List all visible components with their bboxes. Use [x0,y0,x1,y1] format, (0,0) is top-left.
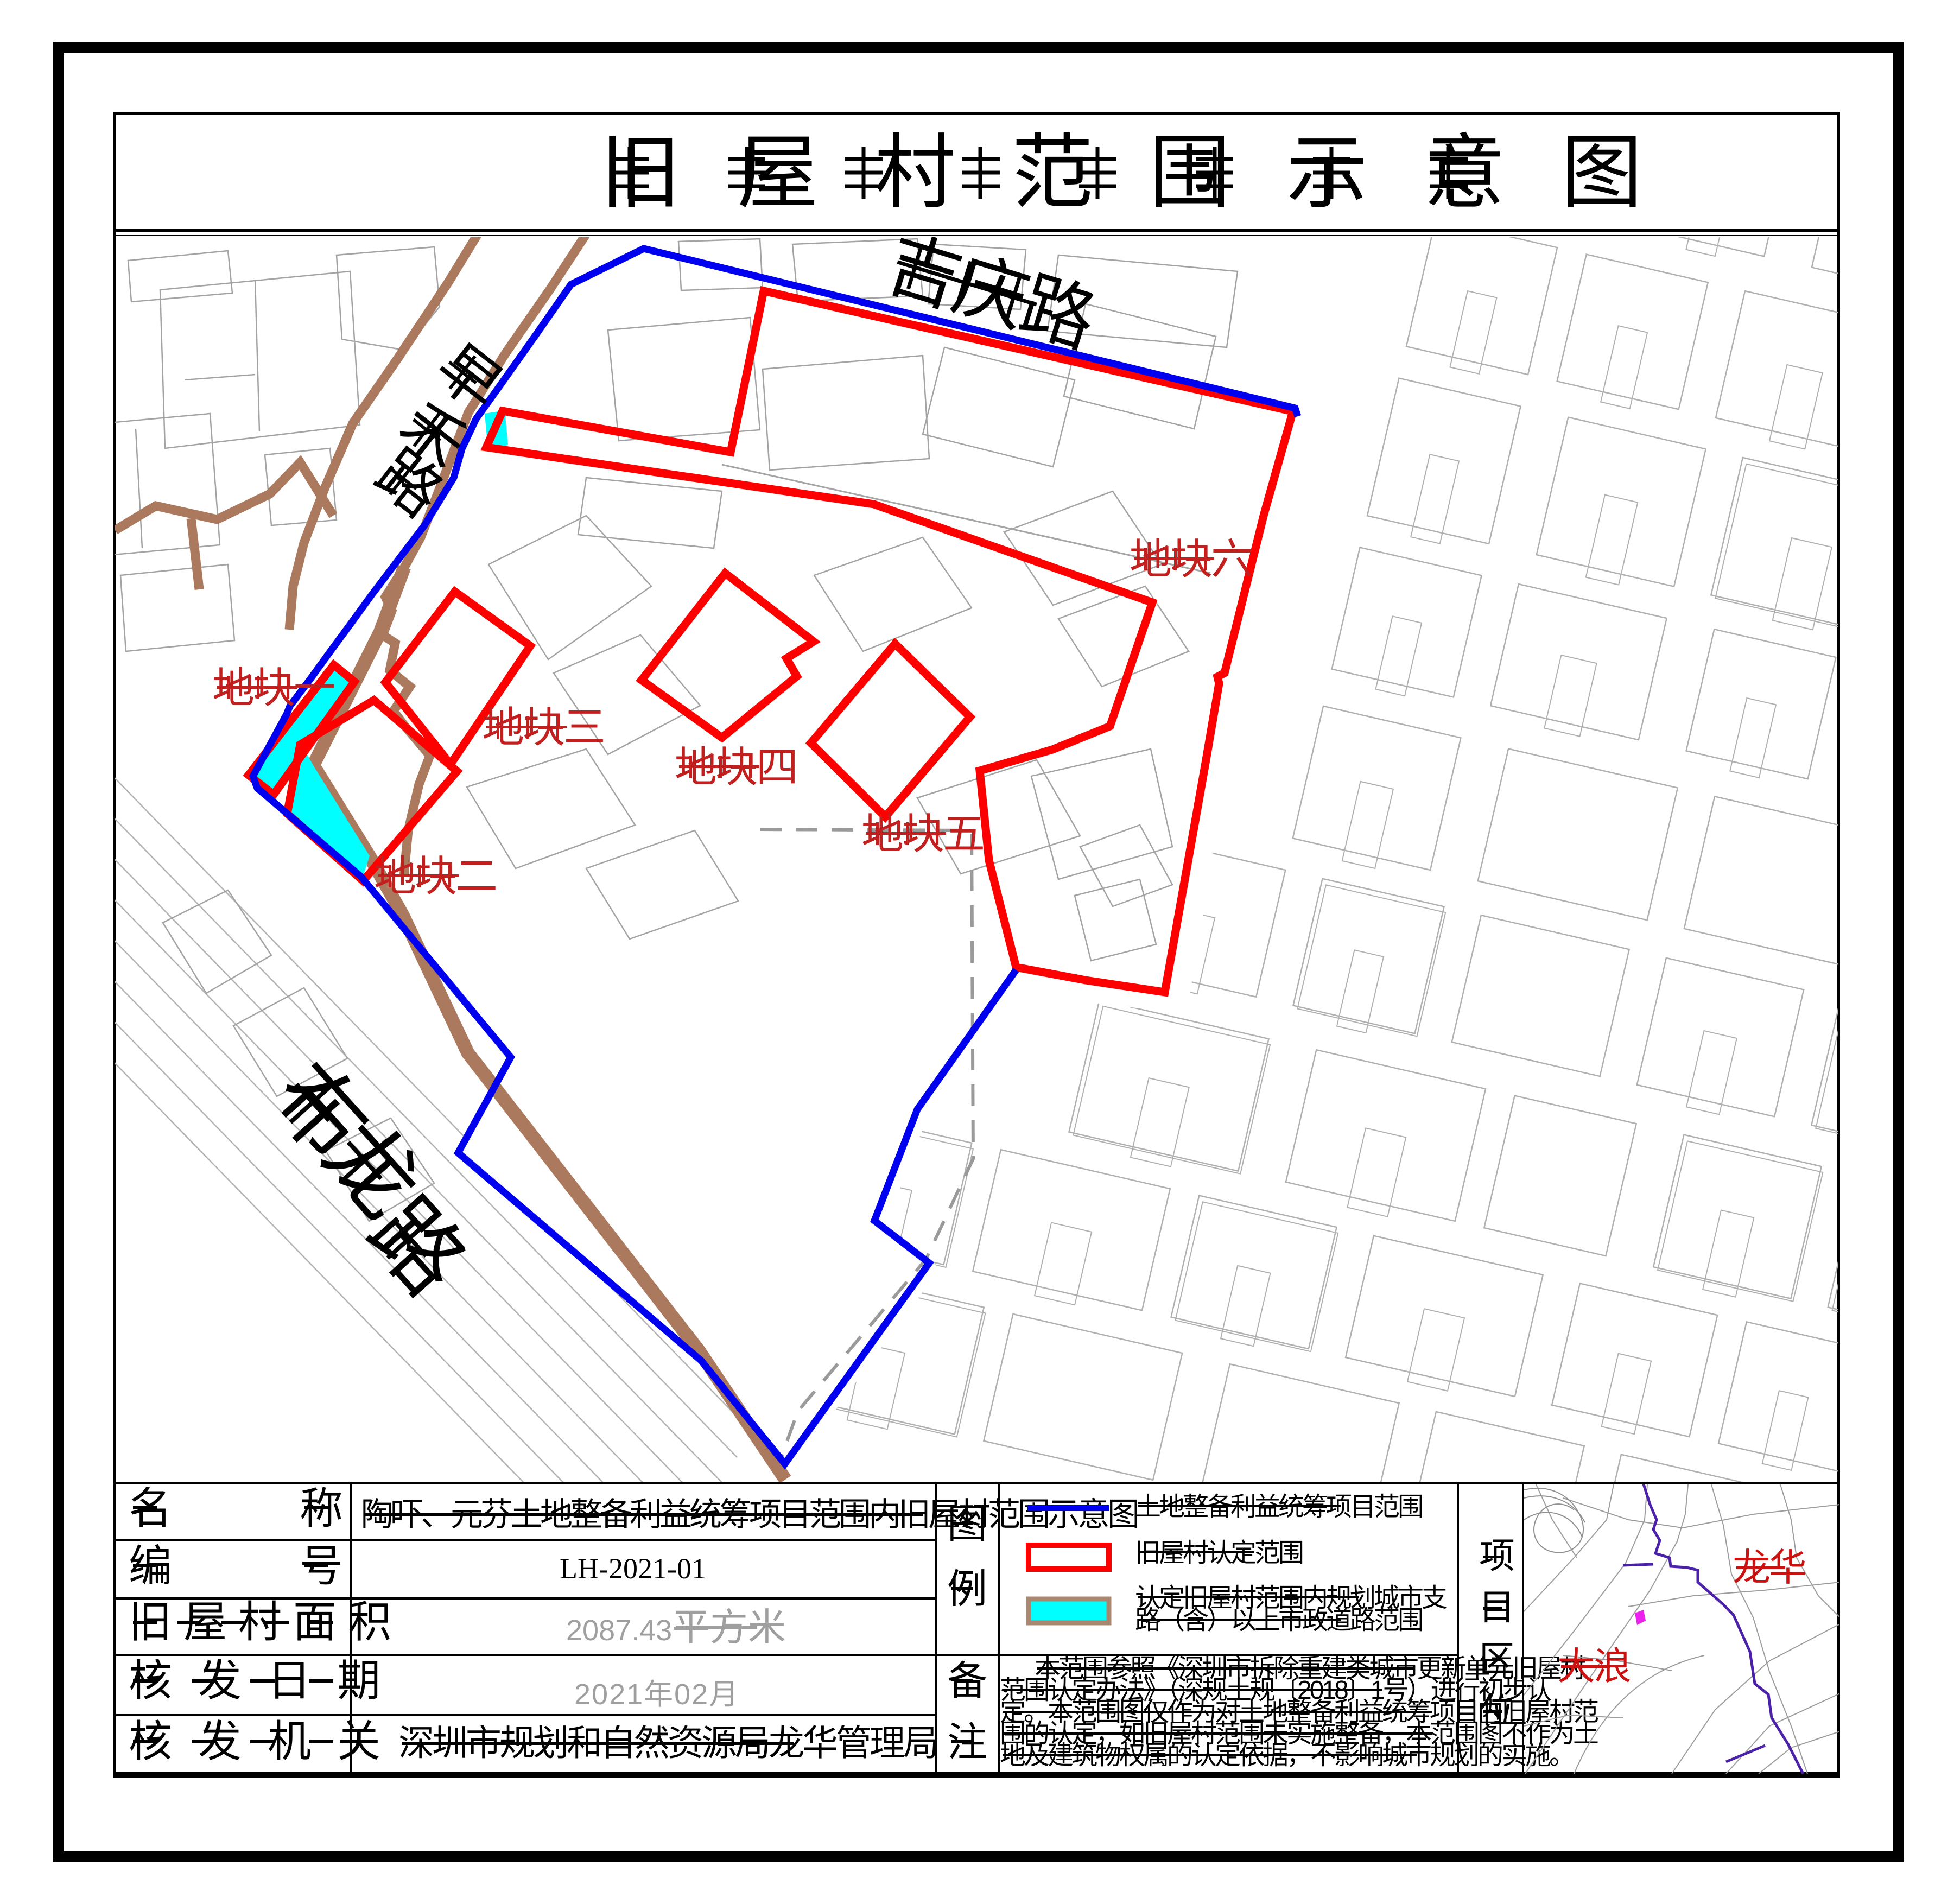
svg-text:2021年02月: 2021年02月 [574,1678,739,1711]
svg-text:LH-2021-01: LH-2021-01 [560,1552,706,1585]
svg-text:2087.43: 2087.43 [566,1614,672,1647]
